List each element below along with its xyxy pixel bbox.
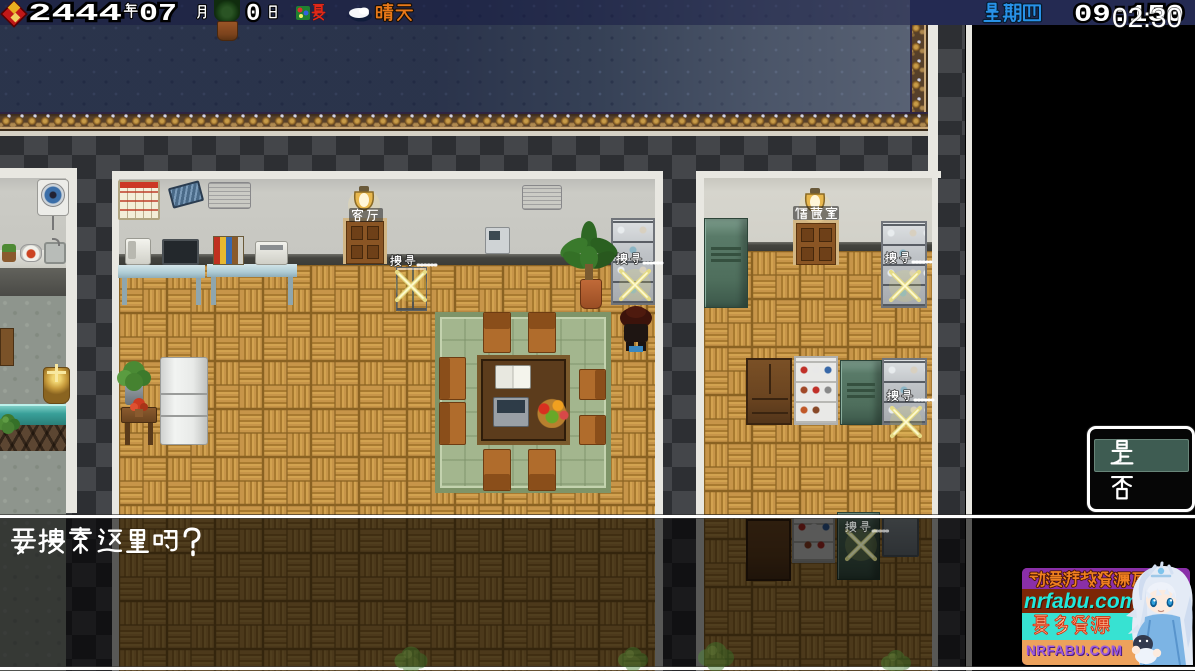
svg-text:02:30: 02:30 (1112, 2, 1182, 33)
svg-text:2444: 2444 (28, 1, 122, 28)
svg-text:0: 0 (246, 1, 260, 28)
svg-text:07: 07 (139, 1, 177, 28)
